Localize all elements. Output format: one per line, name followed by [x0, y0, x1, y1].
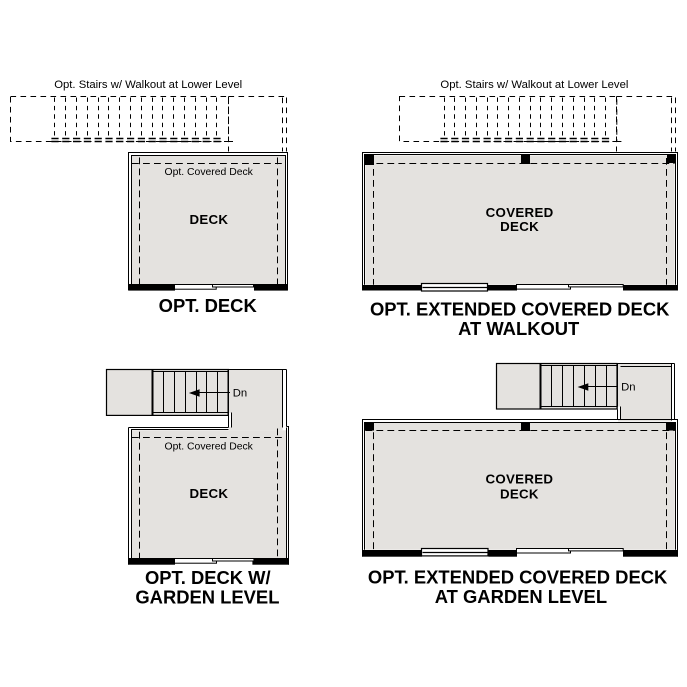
svg-text:Opt. Stairs w/ Walkout at Lowe: Opt. Stairs w/ Walkout at Lower Level	[54, 79, 242, 91]
svg-text:AT GARDEN LEVEL: AT GARDEN LEVEL	[435, 586, 607, 607]
svg-text:Opt. Stairs w/ Walkout at Lowe: Opt. Stairs w/ Walkout at Lower Level	[440, 79, 628, 91]
svg-text:OPT. EXTENDED COVERED DECK: OPT. EXTENDED COVERED DECK	[370, 299, 670, 320]
svg-text:DECK: DECK	[189, 486, 228, 501]
svg-text:COVERED: COVERED	[485, 471, 553, 486]
svg-text:Opt. Covered Deck: Opt. Covered Deck	[165, 442, 254, 453]
svg-text:OPT. DECK: OPT. DECK	[159, 295, 258, 316]
svg-text:DECK: DECK	[500, 219, 539, 234]
svg-text:Dn: Dn	[621, 381, 635, 393]
svg-text:GARDEN LEVEL: GARDEN LEVEL	[135, 587, 279, 608]
svg-text:Dn: Dn	[233, 388, 247, 400]
svg-text:DECK: DECK	[189, 212, 228, 227]
svg-text:AT WALKOUT: AT WALKOUT	[458, 318, 580, 339]
svg-text:DECK: DECK	[500, 486, 539, 501]
svg-text:OPT. DECK W/: OPT. DECK W/	[145, 567, 271, 588]
svg-text:Opt. Covered Deck: Opt. Covered Deck	[165, 167, 254, 178]
svg-text:OPT. EXTENDED COVERED DECK: OPT. EXTENDED COVERED DECK	[368, 567, 668, 588]
svg-text:COVERED: COVERED	[486, 205, 554, 220]
